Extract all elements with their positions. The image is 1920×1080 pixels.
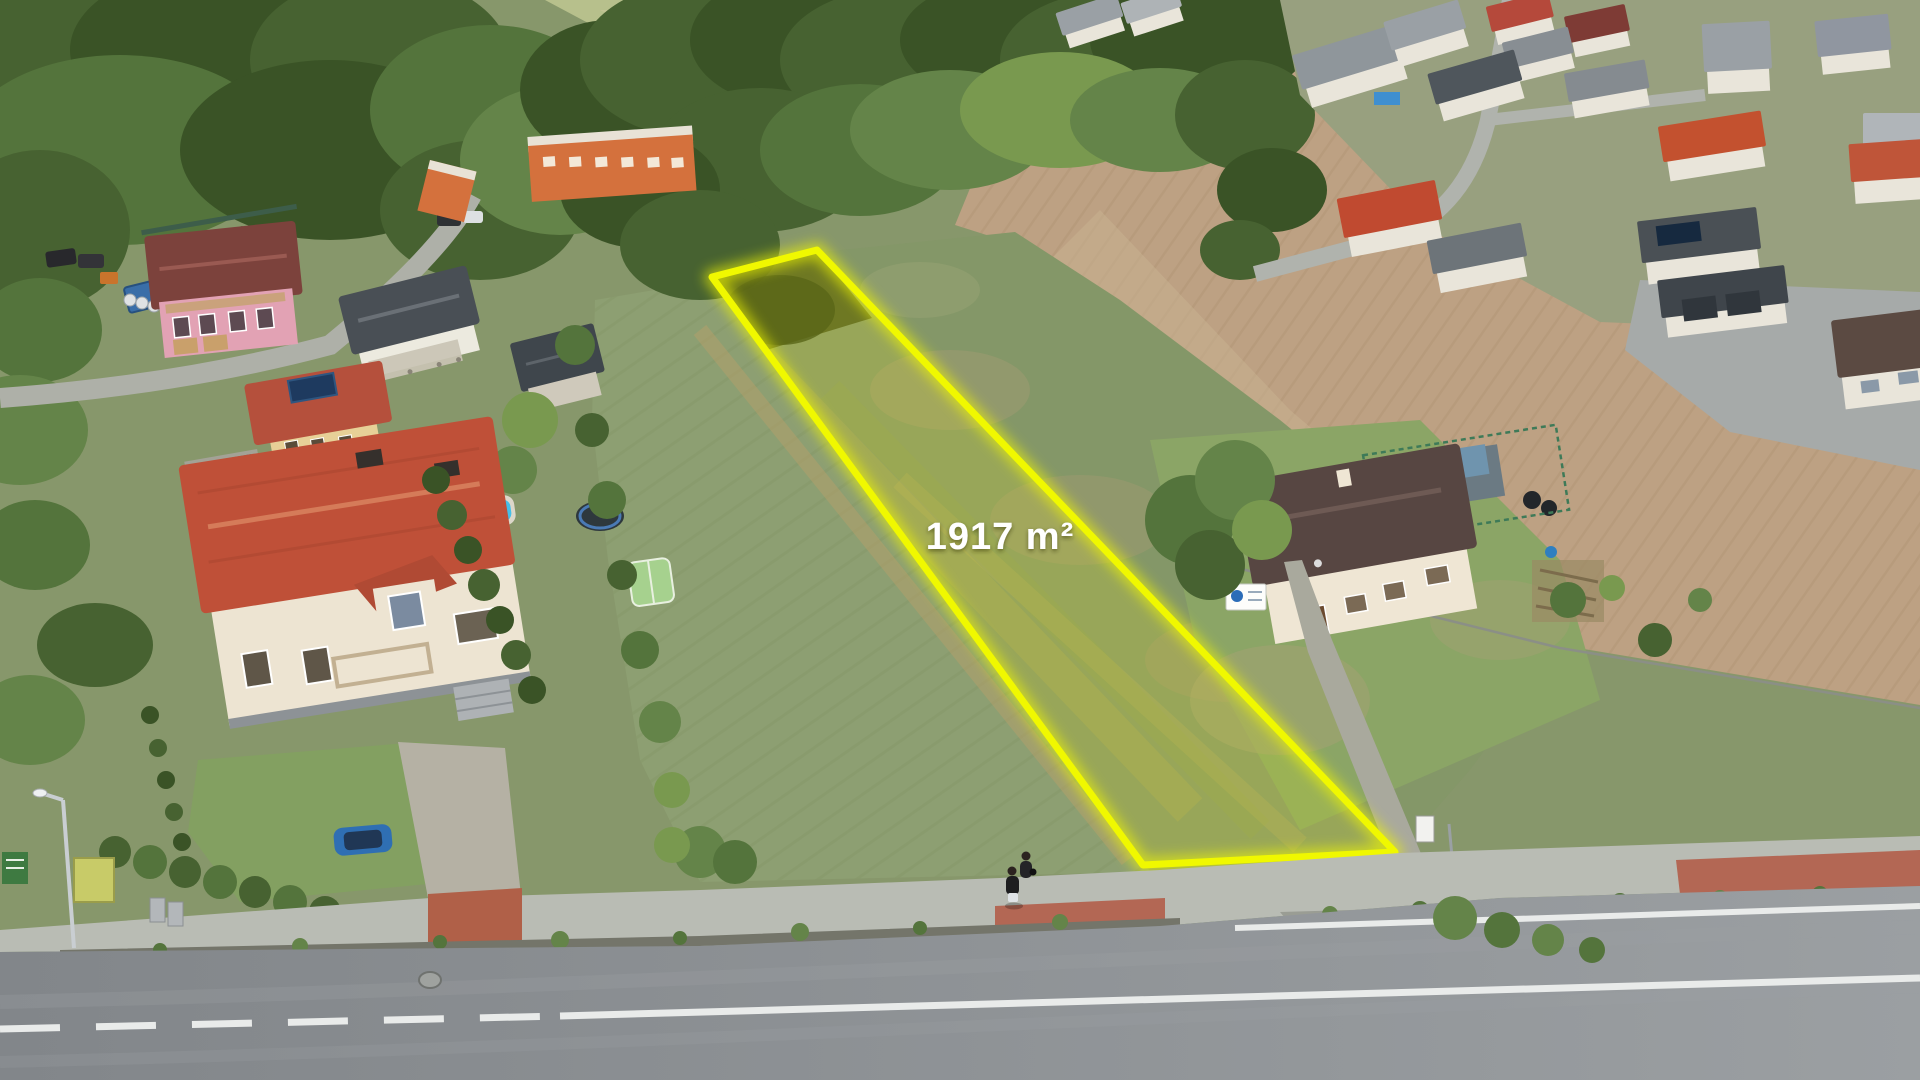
pink-house	[140, 206, 310, 359]
dormer-window	[388, 591, 425, 630]
aerial-photo: 1917 m²	[0, 0, 1920, 1080]
plot-area-label: 1917 m²	[926, 516, 1075, 558]
manhole	[419, 972, 441, 988]
digger	[100, 272, 118, 284]
right-edge-house	[1831, 307, 1920, 410]
blue-car	[333, 823, 393, 856]
transformer-hut	[74, 858, 114, 902]
aerial-photo-stage: 1917 m²	[0, 0, 1920, 1080]
garden-pool	[1374, 92, 1400, 105]
tent	[78, 254, 104, 268]
blue-barrel	[1545, 546, 1557, 558]
small-sign	[1416, 816, 1434, 842]
